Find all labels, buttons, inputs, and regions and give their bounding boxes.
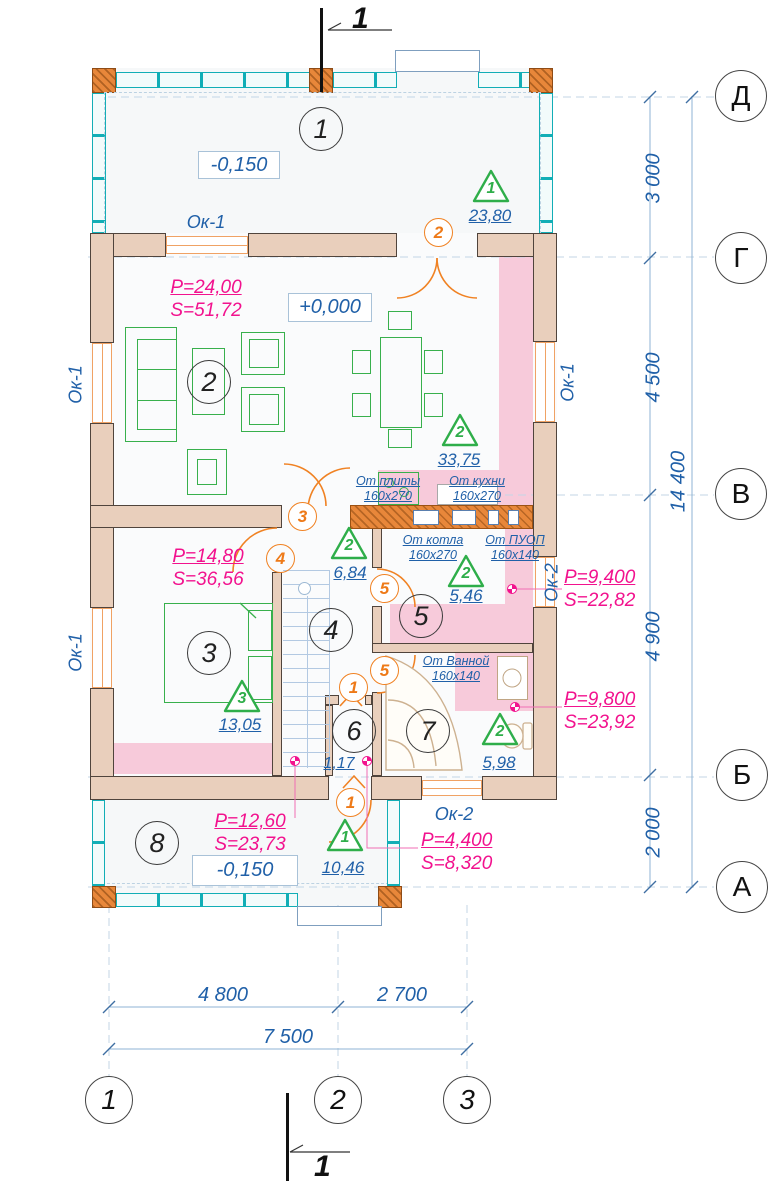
triangle-number: 2 xyxy=(446,565,486,583)
floor-plan-drawing: 1 1 1 2 3 4 5 6 7 8 2 3 4 5 5 1 1 1 23,8… xyxy=(0,0,774,1200)
axis-row-g: Г xyxy=(715,232,767,284)
dim-right-1: 3 000 xyxy=(643,129,666,229)
window-label-ok1-right: Ок-1 xyxy=(558,353,579,413)
door-marker-2: 2 xyxy=(424,218,453,247)
level-box-terrace: -0,150 xyxy=(198,151,280,179)
room-circle-bathroom: 7 xyxy=(406,709,450,753)
bed-fold xyxy=(240,603,256,618)
vent-size: 160x270 xyxy=(348,489,428,504)
door-marker-4: 4 xyxy=(266,544,295,573)
perimeter-value: P=14,80 xyxy=(161,545,255,568)
triangle-number: 2 xyxy=(329,537,369,555)
area-triangle-terrace: 1 xyxy=(471,168,511,204)
area-value: S=23,92 xyxy=(564,711,635,734)
room-circle-stairhall: 4 xyxy=(309,608,353,652)
vent-size: 160x140 xyxy=(475,548,555,563)
area-value: S=23,73 xyxy=(203,833,297,856)
room-circle-bedroom: 3 xyxy=(187,631,231,675)
area-triangle-hall: 2 xyxy=(329,525,369,561)
dim-right-4: 2 000 xyxy=(643,783,666,883)
area-triangle-bedroom: 3 xyxy=(222,678,262,714)
area-value: S=8,320 xyxy=(421,852,492,875)
ref-marker-bathroom xyxy=(510,702,520,712)
axis-row-v: В xyxy=(715,468,767,520)
area-value-porch: 10,46 xyxy=(313,858,373,878)
section-line-top xyxy=(320,8,323,92)
section-label-bottom: 1 xyxy=(314,1150,331,1184)
window-label-ok1-top: Ок-1 xyxy=(176,212,236,233)
room-circle-porch: 8 xyxy=(135,821,179,865)
vent-name: От ПУОП xyxy=(475,533,555,548)
vent-name: От котла xyxy=(393,533,473,548)
vent-label-boiler: От котла 160x270 xyxy=(393,533,473,563)
room-circle-living: 2 xyxy=(187,360,231,404)
area-triangle-porch: 1 xyxy=(325,817,365,853)
axis-row-b: Б xyxy=(716,749,768,801)
section-line-bottom xyxy=(286,1093,289,1181)
axis-row-a: А xyxy=(716,861,768,913)
level-box-porch: -0,150 xyxy=(192,855,298,886)
perimeter-value: P=9,800 xyxy=(564,688,635,711)
dim-bottom-2: 2 700 xyxy=(352,984,452,1007)
vent-label-kitchen: От кухни 160x270 xyxy=(437,474,517,504)
axis-col-2: 2 xyxy=(314,1076,362,1124)
triangle-number: 1 xyxy=(325,829,365,847)
perimeter-value: P=4,400 xyxy=(421,829,492,852)
level-box-ground: +0,000 xyxy=(288,293,372,322)
axis-col-1: 1 xyxy=(85,1076,133,1124)
vent-name: От Ванной xyxy=(416,654,496,669)
dim-right-3: 4 900 xyxy=(643,587,666,687)
dim-bottom-total: 7 500 xyxy=(238,1026,338,1049)
perimeter-value: P=12,60 xyxy=(203,810,297,833)
triangle-number: 3 xyxy=(222,690,262,708)
area-value-hall: 6,84 xyxy=(320,563,380,583)
area-value: S=51,72 xyxy=(159,299,253,322)
dim-bottom-1: 4 800 xyxy=(173,984,273,1007)
door-marker-1b: 1 xyxy=(336,788,365,817)
window-label-ok2-bottom: Ок-2 xyxy=(424,804,484,825)
perimeter-value: P=24,00 xyxy=(159,276,253,299)
door-marker-3: 3 xyxy=(288,502,317,531)
vent-size: 160x140 xyxy=(416,669,496,684)
window-label-ok1-left-lower: Ок-1 xyxy=(66,623,87,683)
ref-marker-porch xyxy=(290,756,300,766)
room-circle-terrace: 1 xyxy=(299,107,343,151)
stair-width-label: 1,17 xyxy=(314,755,364,773)
stats-porch: P=12,60 S=23,73 xyxy=(203,810,297,856)
vent-label-stove: От плиты 160x270 xyxy=(348,474,428,504)
vent-label-puop: От ПУОП 160x140 xyxy=(475,533,555,563)
dim-right-total: 14 400 xyxy=(668,422,691,542)
area-value-kitchen: 5,46 xyxy=(436,586,496,606)
door-marker-1a: 1 xyxy=(339,673,368,702)
stats-entry: P=4,400 S=8,320 xyxy=(421,829,492,875)
vent-label-bath: От Ванной 160x140 xyxy=(416,654,496,684)
washer-door xyxy=(503,669,521,687)
dim-right-2: 4 500 xyxy=(643,328,666,428)
ref-marker-kitchen xyxy=(507,584,517,594)
stats-kitchen: P=9,400 S=22,82 xyxy=(564,566,635,612)
window-label-ok1-left-upper: Ок-1 xyxy=(66,355,87,415)
area-value-bathroom: 5,98 xyxy=(469,753,529,773)
vent-name: От плиты xyxy=(348,474,428,489)
triangle-number: 2 xyxy=(440,424,480,442)
door-marker-5b: 5 xyxy=(370,656,399,685)
stats-living: P=24,00 S=51,72 xyxy=(159,276,253,322)
stats-bedroom: P=14,80 S=36,56 xyxy=(161,545,255,591)
section-label-top: 1 xyxy=(352,2,369,36)
area-value-bedroom: 13,05 xyxy=(210,715,270,735)
axis-col-3: 3 xyxy=(443,1076,491,1124)
area-value: S=22,82 xyxy=(564,589,635,612)
room-circle-tambour: 6 xyxy=(332,709,376,753)
area-value-living: 33,75 xyxy=(429,450,489,470)
area-value-terrace: 23,80 xyxy=(460,206,520,226)
vent-name: От кухни xyxy=(437,474,517,489)
vent-size: 160x270 xyxy=(393,548,473,563)
stats-bathroom: P=9,800 S=23,92 xyxy=(564,688,635,734)
area-triangle-bathroom: 2 xyxy=(480,711,520,747)
triangle-number: 1 xyxy=(471,180,511,198)
perimeter-value: P=9,400 xyxy=(564,566,635,589)
area-triangle-living: 2 xyxy=(440,412,480,448)
vent-size: 160x270 xyxy=(437,489,517,504)
axis-row-d: Д xyxy=(715,70,767,122)
area-value: S=36,56 xyxy=(161,568,255,591)
triangle-number: 2 xyxy=(480,723,520,741)
